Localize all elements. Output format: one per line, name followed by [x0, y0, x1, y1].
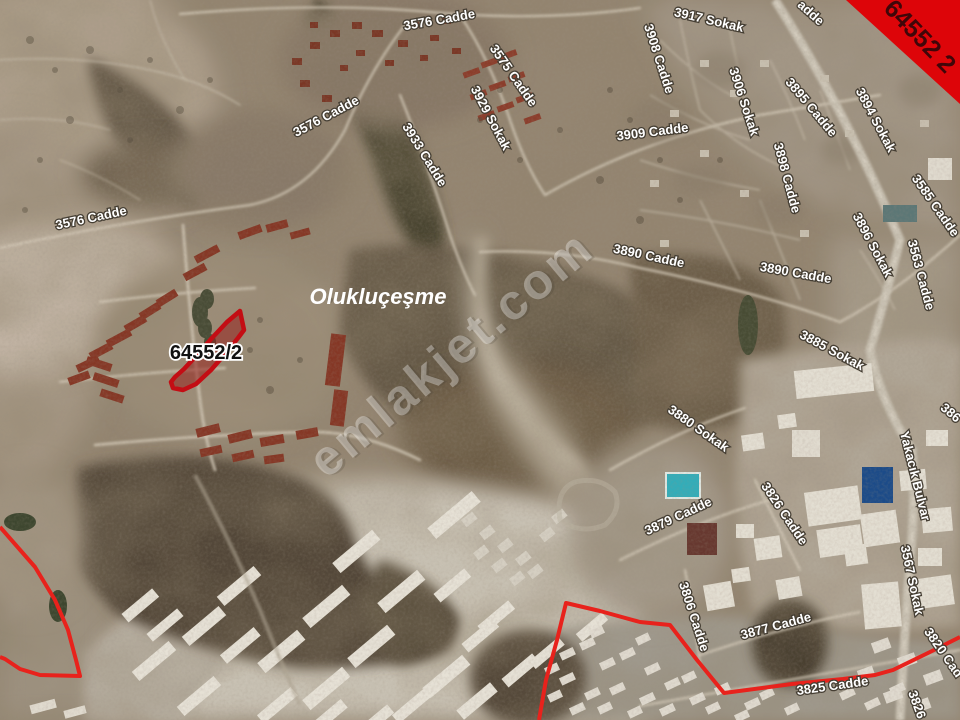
svg-text:Olukluçeşme: Olukluçeşme [310, 284, 447, 309]
svg-text:64552/2: 64552/2 [170, 342, 242, 364]
